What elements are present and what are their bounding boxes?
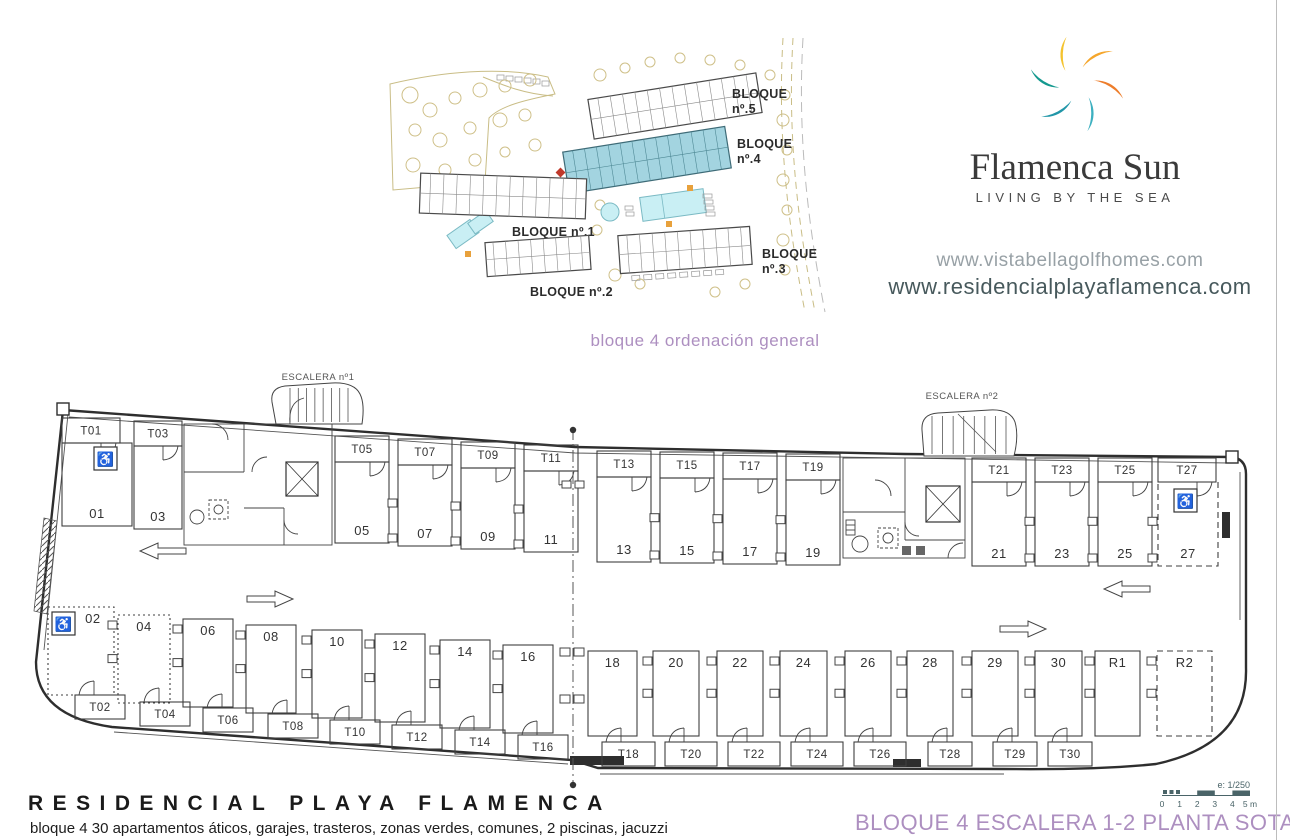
threshold-bar: [570, 756, 624, 765]
parking-label-11: 11: [544, 532, 559, 547]
parking-label-R1: R1: [1109, 655, 1127, 670]
project-title: RESIDENCIAL PLAYA FLAMENCA: [28, 792, 612, 816]
storage-label-T15: T15: [676, 460, 697, 472]
parking-label-15: 15: [679, 543, 694, 558]
page-edge-line: [1276, 0, 1277, 840]
arrow-left-icon: [1104, 581, 1150, 597]
building-outline: [34, 403, 1246, 774]
parking-label-16: 16: [520, 649, 535, 664]
storage-row-wing1: T05T07T09T11: [335, 436, 578, 485]
parking-row-top-left: 0103: [62, 443, 182, 529]
accessible-icon-space-27: ♿: [1174, 489, 1197, 512]
scale-bar: e: 1/250 012345 m: [1160, 780, 1257, 809]
scale-tick: 3: [1212, 799, 1217, 809]
storage-label-T09: T09: [477, 450, 498, 462]
parking-label-09: 09: [480, 529, 495, 544]
storage-label-T03: T03: [147, 429, 168, 441]
project-subtitle: bloque 4 30 apartamentos áticos, garajes…: [30, 820, 668, 837]
storage-label-T27: T27: [1176, 465, 1197, 477]
parking-label-04: 04: [136, 619, 151, 634]
storage-label-T25: T25: [1114, 465, 1135, 477]
core-1-rooms: [184, 424, 332, 545]
scale-tick: 0: [1160, 799, 1165, 809]
storage-label-T26: T26: [869, 749, 890, 761]
arrow-right-icon: [247, 591, 293, 607]
storage-label-T05: T05: [351, 444, 372, 456]
storage-label-T29: T29: [1004, 749, 1025, 761]
storage-row-top-left: T01T03: [62, 418, 182, 460]
storage-label-T12: T12: [406, 732, 427, 744]
parking-label-23: 23: [1054, 546, 1069, 561]
parking-label-20: 20: [668, 655, 683, 670]
parking-label-07: 07: [417, 526, 432, 541]
parking-label-19: 19: [805, 545, 820, 560]
accessible-icon-space-02: ♿: [52, 612, 75, 635]
stair1-label: ESCALERA nº1: [282, 372, 355, 383]
storage-label-T21: T21: [988, 465, 1009, 477]
parking-label-29: 29: [987, 655, 1002, 670]
plan-sheet-page: BLOQUE nº.5 BLOQUE nº.4: [0, 0, 1290, 840]
parking-label-30: 30: [1051, 655, 1066, 670]
parking-label-03: 03: [150, 509, 165, 524]
parking-label-28: 28: [922, 655, 937, 670]
wheelchair-icon: ♿: [55, 616, 72, 633]
storage-label-T10: T10: [344, 727, 365, 739]
floor-plan: ESCALERA nº1 ESCALERA nº2: [0, 0, 1290, 840]
arrow-right-icon: [1000, 621, 1046, 637]
storage-label-T01: T01: [80, 426, 101, 438]
section-line: [560, 427, 584, 788]
parking-label-26: 26: [860, 655, 875, 670]
storage-label-T30: T30: [1059, 749, 1080, 761]
storage-label-T02: T02: [89, 702, 110, 714]
stairs-escalera-1: [272, 383, 363, 424]
storage-label-T07: T07: [414, 447, 435, 459]
storage-label-T18: T18: [618, 749, 639, 761]
storage-label-T24: T24: [806, 749, 827, 761]
parking-label-R2: R2: [1176, 655, 1194, 670]
storage-label-T06: T06: [217, 715, 238, 727]
scale-ratio: e: 1/250: [1217, 780, 1250, 790]
stair2-label: ESCALERA nº2: [926, 391, 999, 402]
storage-label-T14: T14: [469, 737, 490, 749]
door-bar: [1222, 512, 1230, 538]
parking-label-05: 05: [354, 523, 369, 538]
storage-label-T04: T04: [154, 709, 175, 721]
arrow-left-icon: [140, 543, 186, 559]
storage-label-T08: T08: [282, 721, 303, 733]
parking-label-01: 01: [89, 506, 104, 521]
parking-label-14: 14: [457, 644, 472, 659]
storage-label-T28: T28: [939, 749, 960, 761]
storage-label-T19: T19: [802, 462, 823, 474]
parking-label-02: 02: [85, 611, 100, 626]
parking-label-10: 10: [329, 634, 344, 649]
storage-label-T13: T13: [613, 459, 634, 471]
storage-label-T23: T23: [1051, 465, 1072, 477]
parking-label-25: 25: [1117, 546, 1132, 561]
storage-label-T11: T11: [541, 453, 561, 465]
scale-tick: 2: [1195, 799, 1200, 809]
parking-label-27: 27: [1180, 546, 1195, 561]
scale-tick: 1: [1177, 799, 1182, 809]
parking-label-24: 24: [796, 655, 811, 670]
parking-label-17: 17: [742, 544, 757, 559]
core-2-rooms: [843, 458, 965, 558]
accessible-icon-space-01: ♿: [94, 447, 117, 470]
parking-row-bottom2: 1820222426282930R1R2: [588, 651, 1212, 736]
storage-row-wing2: T13T15T17T19: [597, 451, 840, 494]
storage-label-T17: T17: [739, 461, 760, 473]
parking-label-12: 12: [392, 638, 407, 653]
storage-label-T16: T16: [532, 742, 553, 754]
stairs-escalera-2: [922, 410, 1017, 456]
parking-label-18: 18: [605, 655, 620, 670]
parking-label-06: 06: [200, 623, 215, 638]
scale-tick: 4: [1230, 799, 1235, 809]
retaining-wall-hatch: [34, 518, 57, 614]
storage-label-T20: T20: [680, 749, 701, 761]
storage-label-T22: T22: [743, 749, 764, 761]
parking-label-13: 13: [616, 542, 631, 557]
sheet-title: BLOQUE 4 ESCALERA 1-2 PLANTA SOTANO: [855, 810, 1267, 836]
wheelchair-icon: ♿: [97, 451, 114, 468]
parking-label-22: 22: [732, 655, 747, 670]
scale-tick: 5 m: [1243, 799, 1257, 809]
parking-row-wing2: 13151719: [597, 477, 840, 565]
parking-label-08: 08: [263, 629, 278, 644]
wheelchair-icon: ♿: [1177, 493, 1194, 510]
parking-label-21: 21: [991, 546, 1006, 561]
